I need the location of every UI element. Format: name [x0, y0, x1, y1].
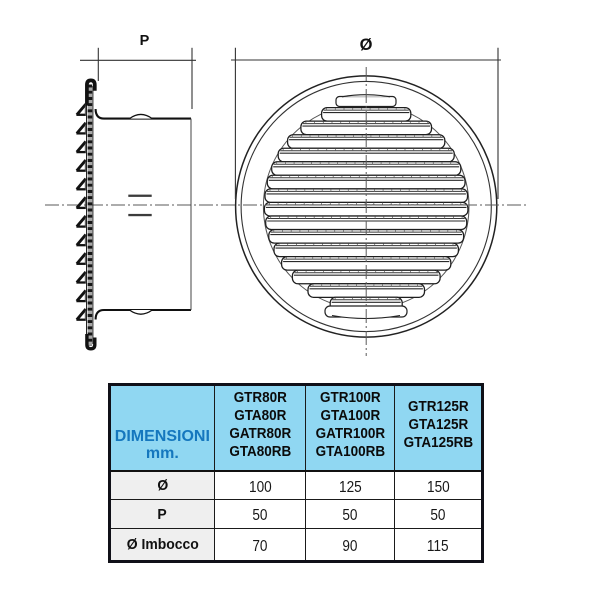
svg-text:Ø: Ø	[360, 36, 373, 54]
svg-text:P: P	[140, 33, 150, 49]
